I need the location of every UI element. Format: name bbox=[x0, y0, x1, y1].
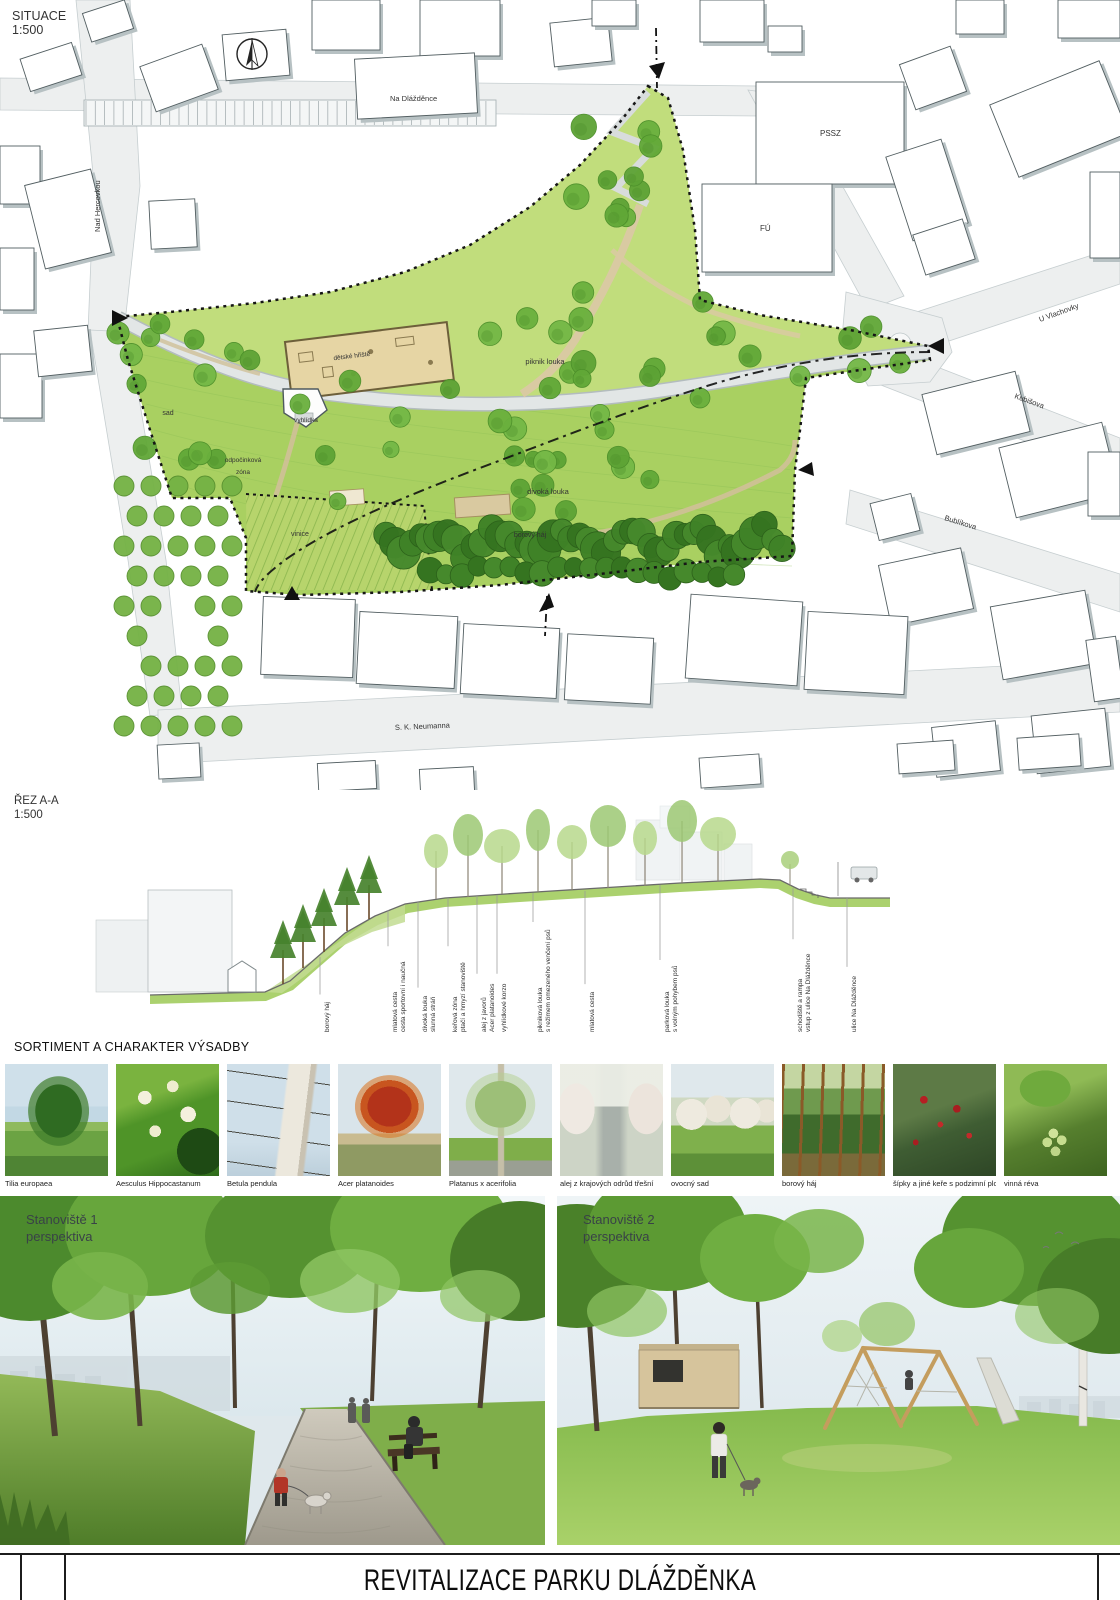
tree-texture bbox=[574, 123, 587, 136]
tree-texture bbox=[575, 289, 586, 300]
plant-photo-aesculus bbox=[116, 1064, 219, 1176]
tree-texture bbox=[515, 506, 527, 518]
north-arrow-icon bbox=[237, 38, 267, 70]
building-footprint bbox=[261, 596, 356, 677]
building-footprint bbox=[355, 53, 478, 119]
area-label-wild-meadow: divoká louka bbox=[527, 487, 570, 496]
building bbox=[419, 766, 477, 790]
plant-item-orchard: ovocný sad bbox=[671, 1064, 774, 1189]
street-label-nad-hercovkou: Nad Hercovkou bbox=[93, 180, 102, 232]
building-footprint bbox=[1017, 734, 1081, 770]
titleblock-divider bbox=[64, 1555, 66, 1600]
tree-texture bbox=[342, 378, 353, 389]
orchard-tree bbox=[195, 476, 215, 496]
tree-texture bbox=[491, 417, 503, 429]
orchard-tree bbox=[114, 596, 134, 616]
section-tree-crown bbox=[667, 800, 697, 842]
building bbox=[768, 26, 805, 56]
orchard-tree bbox=[168, 536, 188, 556]
board-title: REVITALIZACE PARKU DLÁŽDĚNKA bbox=[140, 1564, 980, 1598]
orchard-tree bbox=[181, 686, 201, 706]
plant-photo-label: ovocný sad bbox=[671, 1179, 774, 1189]
orchard-tree bbox=[168, 656, 188, 676]
building-footprint bbox=[804, 611, 908, 694]
perspective-2-label: Stanoviště 2 perspektiva bbox=[583, 1212, 655, 1246]
building bbox=[899, 45, 970, 113]
area-label-picnic: piknik louka bbox=[525, 357, 565, 366]
building bbox=[700, 0, 767, 46]
callout-label: keřová zóna bbox=[452, 996, 459, 1032]
plant-photo-label: alej z krajových odrůd třešní bbox=[560, 1179, 663, 1189]
callout-label: borový háj bbox=[324, 1002, 331, 1032]
perspective-1-subtitle: perspektiva bbox=[26, 1229, 98, 1246]
plant-photo-strip: Tilia europaeaAesculus HippocastanumBetu… bbox=[5, 1064, 1115, 1189]
plant-photo-orchard bbox=[671, 1064, 774, 1176]
section-tree-crown bbox=[484, 829, 520, 863]
lawn bbox=[557, 1406, 1120, 1545]
building-label-pssz: PSSZ bbox=[820, 129, 841, 138]
tree-texture bbox=[558, 508, 569, 519]
section-scale: 1:500 bbox=[14, 809, 43, 821]
building-footprint bbox=[157, 743, 201, 779]
orchard-tree bbox=[208, 626, 228, 646]
plant-item-tilia: Tilia europaea bbox=[5, 1064, 108, 1189]
orchard-tree bbox=[141, 656, 161, 676]
callout-label: vyhlídkové korzo bbox=[501, 983, 508, 1032]
building bbox=[460, 624, 563, 703]
callout-label: vstup z ulice Na Dlážděnce bbox=[805, 953, 812, 1032]
tree-texture bbox=[562, 369, 573, 380]
building-footprint bbox=[592, 0, 636, 26]
plant-photo-betula bbox=[227, 1064, 330, 1176]
plan-title: SITUACE bbox=[12, 9, 66, 23]
building-footprint bbox=[0, 248, 34, 310]
building bbox=[956, 0, 1007, 38]
building bbox=[699, 754, 764, 790]
plant-photo-label: Betula pendula bbox=[227, 1179, 330, 1189]
tree-texture bbox=[575, 376, 584, 385]
tree-texture bbox=[695, 299, 705, 309]
building bbox=[1058, 0, 1120, 42]
building-footprint bbox=[990, 590, 1097, 680]
orchard-tree bbox=[208, 506, 228, 526]
plant-item-cherry: alej z krajových odrůd třešní bbox=[560, 1064, 663, 1189]
building-footprint bbox=[312, 0, 380, 50]
building bbox=[639, 1344, 739, 1408]
perspective-1-label: Stanoviště 1 perspektiva bbox=[26, 1212, 98, 1246]
building bbox=[1017, 734, 1084, 774]
building-label-fu: FÚ bbox=[760, 224, 771, 233]
tree-texture bbox=[392, 414, 402, 424]
section-drawing: ŘEZ A-A 1:500 borový hájmlatová cestaces… bbox=[0, 790, 1120, 1048]
area-label-orchard: sad bbox=[162, 410, 173, 417]
tree-texture bbox=[331, 499, 339, 507]
building-footprint bbox=[768, 26, 802, 52]
tree-texture bbox=[243, 357, 253, 367]
terrain bbox=[150, 862, 890, 1004]
area-label-vineyard: vinice bbox=[291, 531, 309, 538]
orchard-tree bbox=[141, 476, 161, 496]
orchard-tree bbox=[222, 656, 242, 676]
tree-texture bbox=[318, 452, 328, 462]
tree-texture bbox=[144, 335, 153, 344]
plant-photo-platanus bbox=[449, 1064, 552, 1176]
building-footprint bbox=[356, 611, 458, 688]
building-footprint bbox=[990, 61, 1120, 178]
building-footprint bbox=[0, 354, 42, 418]
tree-texture bbox=[187, 337, 197, 347]
building-footprint bbox=[897, 740, 955, 774]
callout-label: ptačí a hmyzí stanoviště bbox=[460, 962, 467, 1032]
titleblock-divider bbox=[1097, 1555, 1099, 1600]
section-tree-crown bbox=[781, 851, 799, 869]
building bbox=[149, 199, 201, 253]
tree-texture bbox=[627, 174, 637, 184]
section-tree-crown bbox=[526, 809, 550, 851]
section-tree-crown bbox=[590, 805, 626, 847]
tree-texture bbox=[513, 486, 522, 495]
section-pine bbox=[294, 904, 312, 928]
plant-item-acer: Acer platanoides bbox=[338, 1064, 441, 1189]
tree-texture bbox=[597, 427, 607, 437]
building bbox=[804, 611, 911, 698]
tree-texture bbox=[481, 330, 493, 342]
plant-photo-label: šípky a jiné keře s podzimní plody bbox=[893, 1179, 996, 1189]
tree-texture bbox=[572, 316, 584, 328]
building-footprint bbox=[685, 594, 803, 686]
area-label-restzone-1: odpočinková bbox=[225, 457, 262, 464]
tree-texture bbox=[443, 386, 453, 396]
building bbox=[1090, 172, 1120, 262]
tree-texture bbox=[197, 372, 208, 383]
section-header: ŘEZ A-A 1:500 bbox=[14, 794, 59, 821]
section-tree-crown bbox=[424, 834, 448, 868]
orchard-tree bbox=[114, 476, 134, 496]
building bbox=[356, 611, 461, 692]
tree-texture bbox=[841, 335, 852, 346]
callout-label: s režimem omezeného venčení psů bbox=[544, 929, 552, 1032]
area-label-pine-grove: borový háj bbox=[514, 532, 547, 539]
orchard-tree bbox=[195, 596, 215, 616]
orchard-tree bbox=[154, 686, 174, 706]
area-label-lookout: vyhlídka bbox=[294, 417, 318, 424]
plant-photo-label: Platanus x acerifolia bbox=[449, 1179, 552, 1189]
perspective-2-subtitle: perspektiva bbox=[583, 1229, 655, 1246]
pine-tree bbox=[723, 564, 744, 585]
building-footprint bbox=[419, 767, 474, 790]
plant-photo-label: borový háj bbox=[782, 1179, 885, 1189]
tree-texture bbox=[608, 212, 620, 224]
building-footprint bbox=[1088, 452, 1120, 516]
section-title: ŘEZ A-A bbox=[14, 794, 59, 807]
tree-texture bbox=[642, 373, 652, 383]
plant-item-platanus: Platanus x acerifolia bbox=[449, 1064, 552, 1189]
orchard-tree bbox=[222, 476, 242, 496]
presentation-board: SITUACE 1:500 Na Dlážděnce Nad Hercovkou… bbox=[0, 0, 1120, 1600]
sortiment-heading: SORTIMENT A CHARAKTER VÝSADBY bbox=[14, 1040, 249, 1054]
orchard-tree bbox=[208, 566, 228, 586]
site-plan: SITUACE 1:500 Na Dlážděnce Nad Hercovkou… bbox=[0, 0, 1120, 790]
callout-label: Acer platanoides bbox=[489, 983, 496, 1032]
building bbox=[592, 0, 639, 30]
plant-photo-tilia bbox=[5, 1064, 108, 1176]
plant-photo-pine bbox=[782, 1064, 885, 1176]
orchard-tree bbox=[168, 716, 188, 736]
building bbox=[157, 743, 204, 783]
plant-photo-vine bbox=[1004, 1064, 1107, 1176]
callout-label: mlatová cesta bbox=[392, 992, 399, 1032]
tree-texture bbox=[850, 367, 862, 379]
orchard-tree bbox=[222, 716, 242, 736]
building bbox=[685, 594, 806, 690]
building bbox=[897, 740, 958, 778]
orchard-tree bbox=[114, 716, 134, 736]
perspective-1-scene bbox=[0, 1196, 545, 1545]
plant-photo-label: Acer platanoides bbox=[338, 1179, 441, 1189]
section-tree-crown bbox=[557, 825, 587, 859]
tree-texture bbox=[742, 353, 753, 364]
perspective-2: Stanoviště 2 perspektiva bbox=[557, 1196, 1120, 1545]
tree-texture bbox=[552, 329, 564, 341]
building-footprint bbox=[564, 634, 653, 704]
orchard-tree bbox=[195, 536, 215, 556]
building bbox=[355, 53, 481, 123]
plant-photo-label: vinná réva bbox=[1004, 1179, 1107, 1189]
section-tree-crown bbox=[453, 814, 483, 856]
worn-patch bbox=[782, 1444, 952, 1472]
tree-texture bbox=[519, 315, 530, 326]
callout-label: slunná stráň bbox=[430, 996, 437, 1032]
callout-label: ulice Na Dlážděnce bbox=[851, 976, 858, 1032]
plant-photo-rosehip bbox=[893, 1064, 996, 1176]
orchard-tree bbox=[127, 566, 147, 586]
perspective-2-scene bbox=[557, 1196, 1120, 1545]
building bbox=[990, 60, 1120, 181]
orchard-tree bbox=[141, 536, 161, 556]
plan-scale: 1:500 bbox=[12, 23, 43, 37]
street-label-na-dlazdence: Na Dlážděnce bbox=[390, 94, 437, 103]
section-pine bbox=[338, 867, 356, 891]
orchard-tree bbox=[181, 506, 201, 526]
callout-label: alej z javorů bbox=[480, 997, 488, 1032]
building bbox=[317, 760, 380, 790]
plant-item-rosehip: šípky a jiné keře s podzimní plody bbox=[893, 1064, 996, 1189]
building bbox=[0, 248, 37, 314]
section-pine bbox=[274, 920, 292, 944]
tree-texture bbox=[292, 401, 302, 411]
callout-label: pikniková louka bbox=[537, 987, 544, 1032]
orchard-tree bbox=[154, 506, 174, 526]
plant-photo-cherry bbox=[560, 1064, 663, 1176]
building bbox=[420, 0, 503, 60]
section-tree-crown bbox=[700, 817, 736, 851]
section-pine bbox=[360, 855, 378, 879]
building bbox=[1088, 452, 1120, 520]
tree-texture bbox=[129, 381, 139, 391]
building-footprint bbox=[420, 0, 500, 56]
plant-photo-label: Tilia europaea bbox=[5, 1179, 108, 1189]
orchard-tree bbox=[195, 656, 215, 676]
building bbox=[312, 0, 383, 54]
plant-item-aesculus: Aesculus Hippocastanum bbox=[116, 1064, 219, 1189]
building bbox=[261, 596, 359, 681]
perspective-2-title: Stanoviště 2 bbox=[583, 1212, 655, 1229]
tree-texture bbox=[693, 395, 703, 405]
tree-texture bbox=[136, 444, 148, 456]
tree-texture bbox=[567, 193, 580, 206]
orchard-tree bbox=[195, 716, 215, 736]
orchard-tree bbox=[127, 686, 147, 706]
building-footprint bbox=[699, 754, 761, 788]
orchard-tree bbox=[222, 596, 242, 616]
orchard-tree bbox=[208, 686, 228, 706]
tree-texture bbox=[542, 385, 553, 396]
tree-texture bbox=[110, 330, 121, 341]
tree-texture bbox=[600, 177, 609, 186]
plant-item-pine: borový háj bbox=[782, 1064, 885, 1189]
perspective-1-title: Stanoviště 1 bbox=[26, 1212, 98, 1229]
building-footprint bbox=[34, 325, 93, 376]
plant-item-betula: Betula pendula bbox=[227, 1064, 330, 1189]
building-footprint bbox=[1058, 0, 1120, 38]
building bbox=[564, 634, 657, 709]
building-footprint bbox=[317, 761, 376, 790]
building-footprint bbox=[1090, 172, 1120, 258]
orchard-tree bbox=[141, 716, 161, 736]
orchard-tree bbox=[222, 536, 242, 556]
callout-label: mlatová cesta bbox=[589, 992, 596, 1032]
tree-texture bbox=[593, 411, 603, 421]
tree-texture bbox=[610, 454, 621, 465]
section-pine bbox=[315, 888, 333, 912]
orchard-tree bbox=[114, 536, 134, 556]
plant-item-vine: vinná réva bbox=[1004, 1064, 1107, 1189]
tree-texture bbox=[709, 333, 718, 342]
orchard-tree bbox=[127, 506, 147, 526]
section-tree-crown bbox=[633, 821, 657, 855]
title-block: REVITALIZACE PARKU DLÁŽDĚNKA bbox=[0, 1553, 1120, 1600]
orchard-tree bbox=[127, 626, 147, 646]
orchard-tree bbox=[181, 566, 201, 586]
tree-texture bbox=[643, 477, 652, 486]
building-footprint bbox=[149, 199, 197, 249]
callout-label: schodiště a rampa bbox=[797, 979, 804, 1032]
tree-texture bbox=[227, 349, 236, 358]
titleblock-divider bbox=[20, 1555, 22, 1600]
tree-texture bbox=[792, 373, 802, 383]
orchard-tree bbox=[154, 566, 174, 586]
tree-texture bbox=[385, 447, 393, 455]
building-footprint bbox=[956, 0, 1004, 34]
tree-texture bbox=[536, 459, 548, 471]
plant-photo-acer bbox=[338, 1064, 441, 1176]
tree-texture bbox=[123, 351, 134, 362]
area-label-restzone-2: zóna bbox=[236, 469, 250, 476]
building-footprint bbox=[700, 0, 764, 42]
callout-label: divoká louka bbox=[422, 995, 429, 1032]
tree-texture bbox=[632, 188, 642, 198]
callout-label: s volným pohybem psů bbox=[671, 965, 679, 1032]
tree-texture bbox=[153, 321, 163, 331]
perspective-1: Stanoviště 1 perspektiva bbox=[0, 1196, 545, 1545]
callout-label: cesta sportovní i naučná bbox=[400, 961, 407, 1032]
plant-photo-label: Aesculus Hippocastanum bbox=[116, 1179, 219, 1189]
building bbox=[34, 325, 96, 381]
orchard-tree bbox=[141, 596, 161, 616]
tree-texture bbox=[642, 143, 653, 154]
callout-label: parková louka bbox=[664, 991, 671, 1032]
tree-texture bbox=[191, 450, 203, 462]
